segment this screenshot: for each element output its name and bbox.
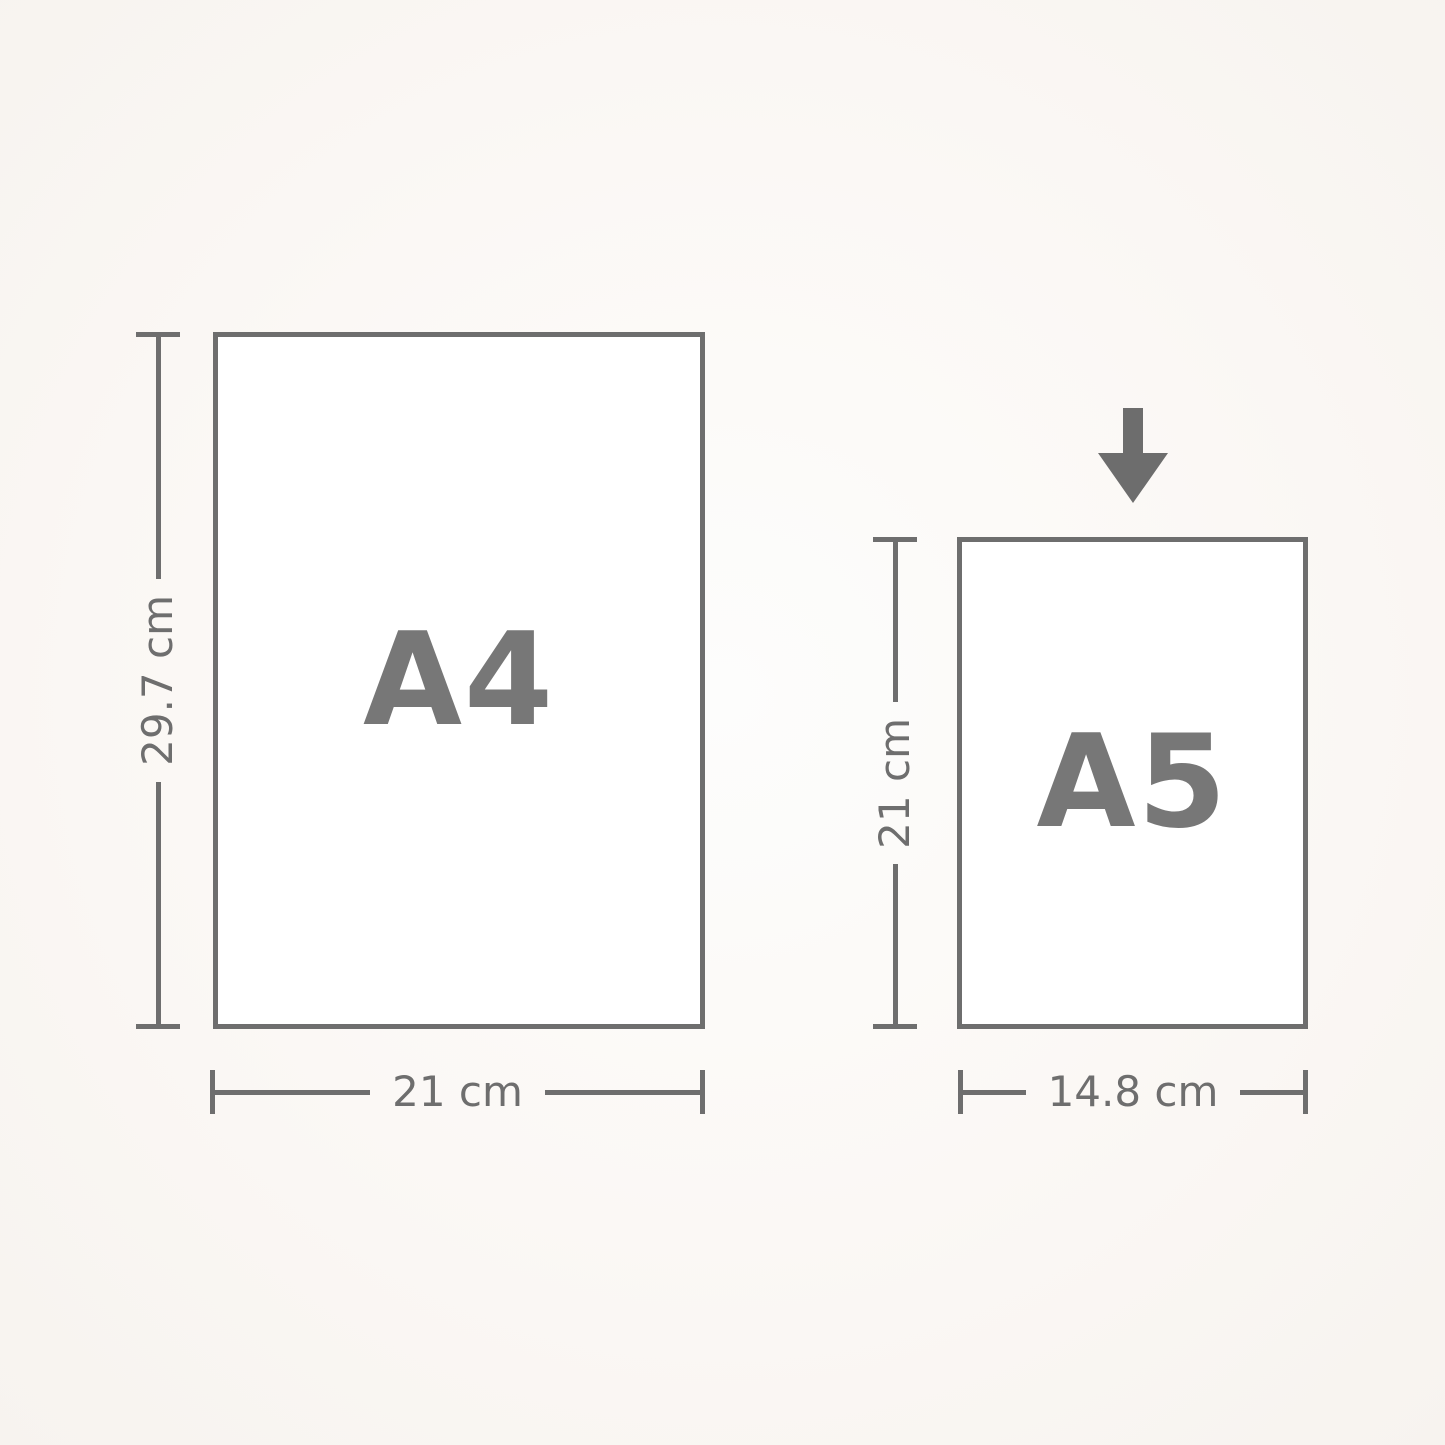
dimension-line [156, 337, 161, 579]
a5-height-dimension: 21 cm [873, 537, 917, 1029]
down-arrow-icon [1098, 408, 1168, 503]
dimension-tick [700, 1070, 705, 1114]
dimension-line [893, 542, 898, 702]
dimension-line [1240, 1090, 1303, 1095]
dimension-line [893, 864, 898, 1024]
dimension-line [156, 782, 161, 1024]
a4-width-dimension: 21 cm [210, 1070, 705, 1114]
a5-label: A5 [1036, 719, 1228, 847]
a5-paper-sheet: A5 [957, 537, 1308, 1029]
dimension-line [963, 1090, 1026, 1095]
paper-size-comparison-diagram: 29.7 cm A4 21 cm 21 cm A5 14.8 cm [0, 0, 1445, 1445]
a5-width-label: 14.8 cm [1048, 1071, 1219, 1113]
dimension-line [545, 1090, 700, 1095]
dimension-tick [873, 1024, 917, 1029]
a4-height-label: 29.7 cm [137, 595, 179, 766]
a4-paper-sheet: A4 [213, 332, 705, 1029]
dimension-tick [136, 1024, 180, 1029]
a4-label: A4 [363, 617, 555, 745]
a4-width-label: 21 cm [392, 1071, 523, 1113]
a4-height-dimension: 29.7 cm [136, 332, 180, 1029]
a5-height-label: 21 cm [874, 718, 916, 849]
a5-width-dimension: 14.8 cm [958, 1070, 1308, 1114]
dimension-line [215, 1090, 370, 1095]
dimension-tick [1303, 1070, 1308, 1114]
